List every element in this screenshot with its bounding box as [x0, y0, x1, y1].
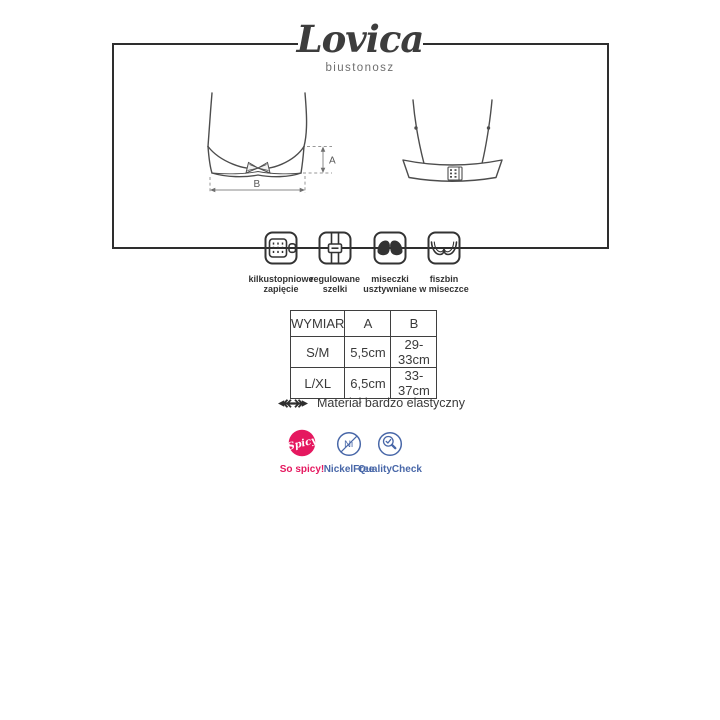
feature-label: fiszbin — [406, 274, 482, 284]
front-strap-left — [208, 93, 212, 147]
frame-border — [112, 43, 609, 249]
front-strap-right — [304, 93, 307, 147]
feature-label: w miseczce — [406, 284, 482, 294]
size-table-cell: 33-37cm — [391, 368, 437, 399]
size-table-cell: L/XL — [291, 368, 345, 399]
padded-cups-icon — [373, 231, 407, 265]
front-bra-outline — [208, 93, 307, 177]
strap-slider-left — [414, 126, 417, 129]
feature-underwire: fiszbin w miseczce — [406, 231, 482, 294]
product-sheet: Lovica biustonosz A — [0, 0, 720, 720]
table-row: L/XL 6,5cm 33-37cm — [291, 368, 437, 399]
size-table-header: WYMIAR — [291, 311, 345, 337]
dimension-b-label: B — [254, 179, 261, 190]
underwire-icon — [427, 231, 461, 265]
dimension-a — [303, 147, 332, 174]
hook-closure — [448, 167, 462, 180]
material-note: Materiał bardzo elastyczny — [277, 396, 465, 410]
stretch-arrows-icon — [277, 397, 309, 410]
size-table: WYMIAR A B S/M 5,5cm 29-33cm L/XL 6,5cm … — [290, 310, 437, 399]
badge-quality-check: QualityCheck — [348, 429, 432, 475]
front-cups-top-edge — [208, 147, 304, 169]
quality-check-icon — [377, 431, 403, 457]
size-table-header: B — [391, 311, 437, 337]
size-table-cell: 5,5cm — [345, 337, 391, 368]
dimension-a-label: A — [329, 156, 336, 167]
strap-slider-right — [487, 126, 490, 129]
frame-top-right-line — [423, 43, 609, 45]
bra-back-view-diagram — [395, 85, 515, 185]
size-table-cell: 6,5cm — [345, 368, 391, 399]
bra-front-view-diagram: A B — [190, 85, 340, 210]
hook-closure-icon — [264, 231, 298, 265]
quality-check-label: QualityCheck — [348, 464, 432, 475]
adjustable-straps-icon — [318, 231, 352, 265]
size-table-cell: 29-33cm — [391, 337, 437, 368]
check-mark — [386, 440, 391, 443]
size-table-cell: S/M — [291, 337, 345, 368]
size-table-header: A — [345, 311, 391, 337]
frame-top-left-line — [112, 43, 298, 45]
material-note-text: Materiał bardzo elastyczny — [317, 396, 465, 410]
table-row: S/M 5,5cm 29-33cm — [291, 337, 437, 368]
magnifier-handle — [392, 445, 395, 448]
back-straps — [413, 100, 492, 164]
